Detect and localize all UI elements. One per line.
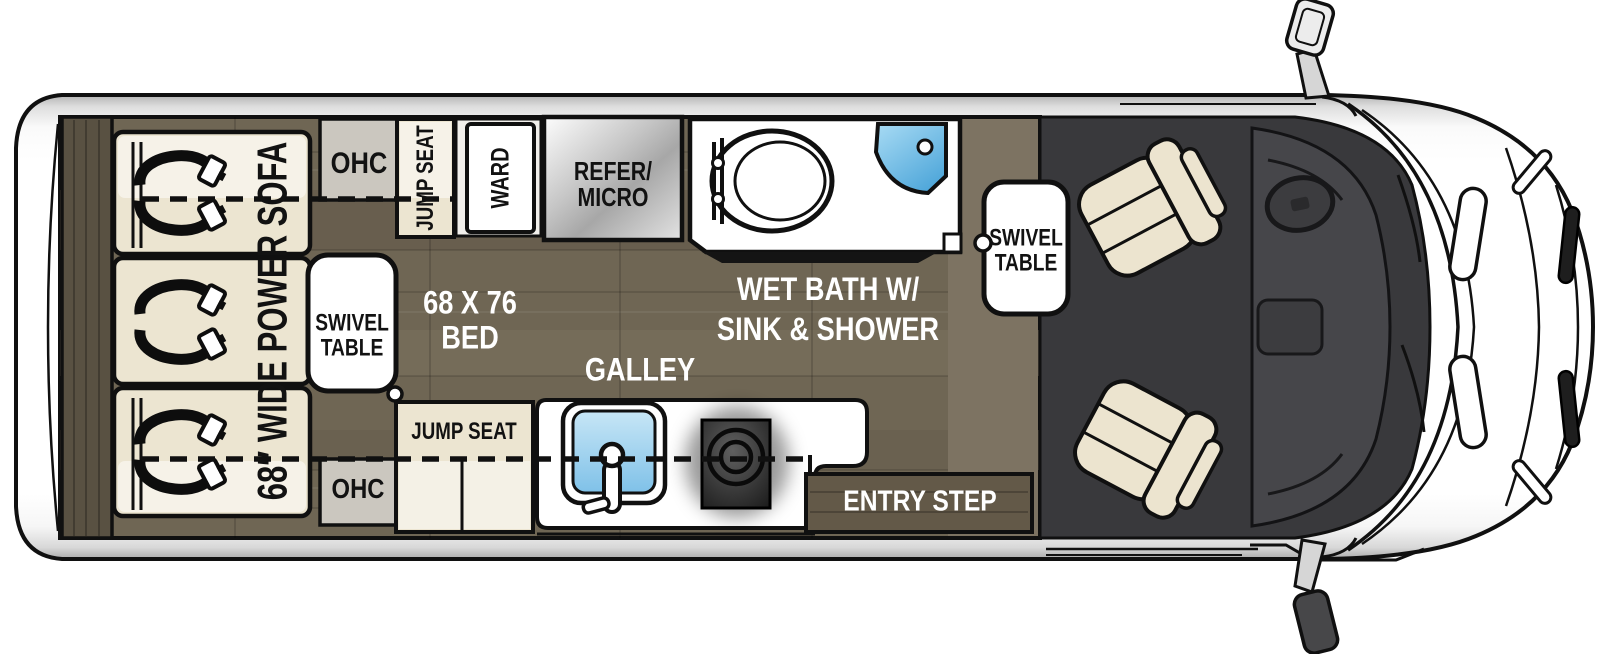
- sofa-label: 68″ WIDE POWER SOFA: [249, 142, 294, 501]
- jump-seat-top-label: JUMP SEAT: [413, 125, 439, 230]
- wet-bath-label: WET BATH W/ SINK & SHOWER: [717, 269, 939, 349]
- table-pivot: [388, 387, 402, 401]
- entry-step-label: ENTRY STEP: [843, 486, 996, 517]
- ohc-top-label: OHC: [331, 148, 388, 180]
- rear-wardrobe-cabinet: [62, 117, 112, 538]
- center-console: [1258, 300, 1322, 354]
- door-latch: [944, 234, 961, 252]
- shower-drain-icon: [918, 140, 932, 154]
- jump-seat-bottom-label: JUMP SEAT: [411, 419, 516, 445]
- galley-label: GALLEY: [585, 353, 695, 388]
- wet-bath: [690, 119, 961, 263]
- cooktop: [685, 406, 789, 518]
- refer-micro-label: REFER/ MICRO: [574, 158, 652, 210]
- toilet: [712, 131, 832, 231]
- swivel-table-rear-label: SWIVEL TABLE: [315, 311, 389, 362]
- side-mirror-top: [1285, 0, 1336, 98]
- ohc-bottom-label: OHC: [332, 474, 385, 504]
- ward-label: WARD: [488, 147, 515, 208]
- swivel-table-cab-label: SWIVEL TABLE: [989, 226, 1063, 277]
- shower-threshold: [702, 252, 938, 263]
- rv-floorplan: 68″ WIDE POWER SOFA OHC JUMP SEAT WARD R…: [0, 0, 1600, 654]
- bed-label: 68 X 76 BED: [423, 285, 517, 354]
